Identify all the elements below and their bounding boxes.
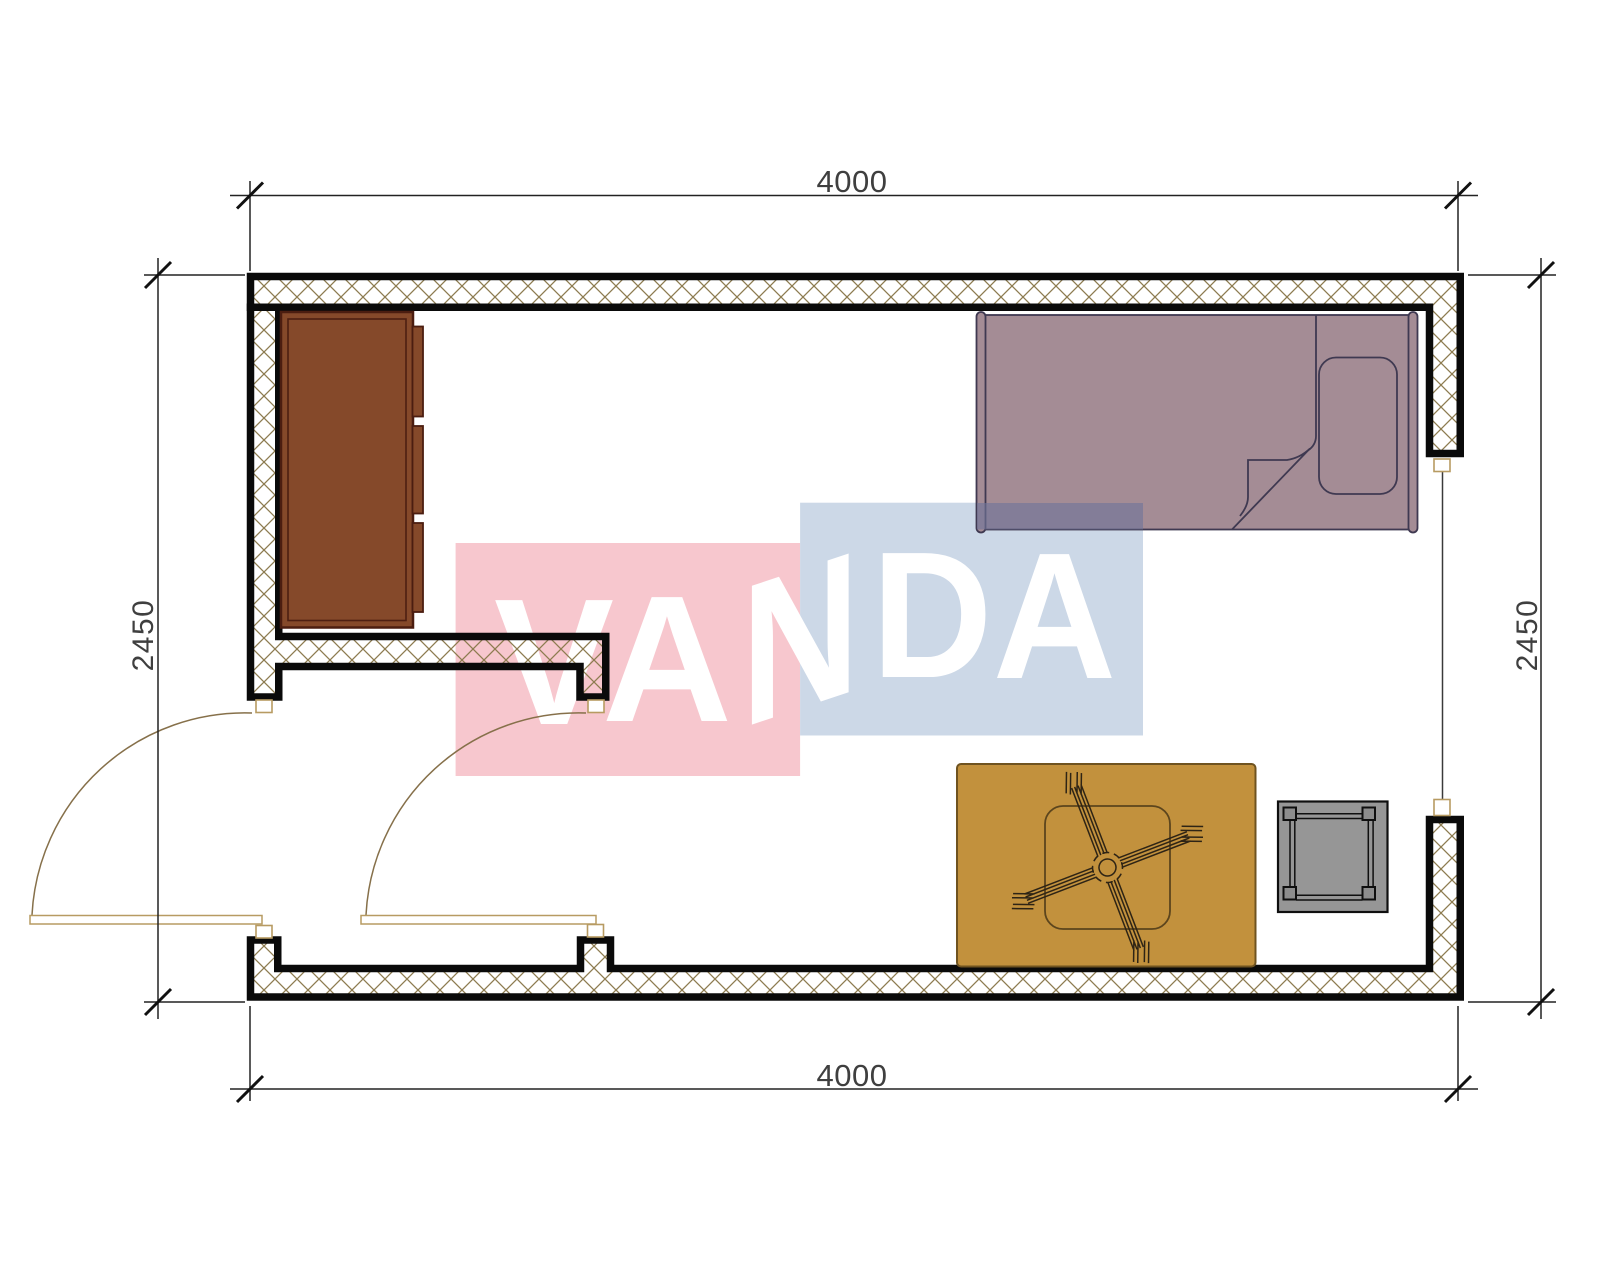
svg-text:A: A bbox=[993, 516, 1116, 717]
svg-text:D: D bbox=[872, 514, 993, 715]
svg-text:N: N bbox=[741, 506, 860, 771]
svg-text:4000: 4000 bbox=[817, 164, 888, 199]
svg-text:A: A bbox=[602, 559, 732, 760]
svg-text:4000: 4000 bbox=[817, 1058, 888, 1093]
svg-text:2450: 2450 bbox=[1511, 599, 1544, 672]
svg-text:2450: 2450 bbox=[127, 599, 160, 672]
